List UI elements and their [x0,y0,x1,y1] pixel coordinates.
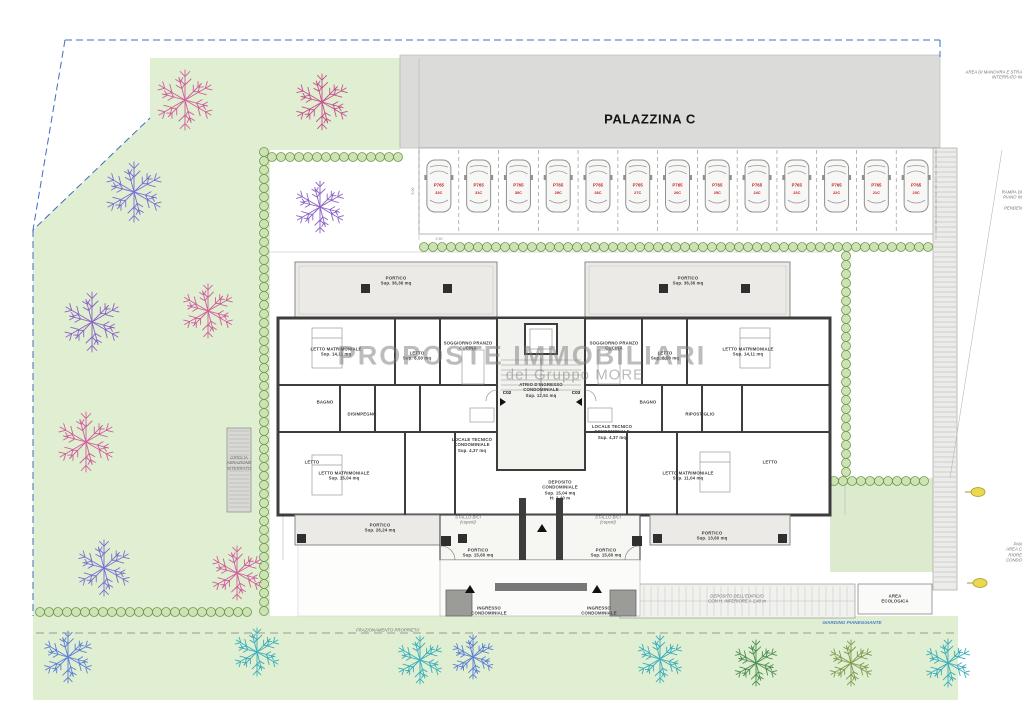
bush-icon [537,243,546,252]
bush-icon [260,481,269,490]
bush-icon [260,517,269,526]
bush-icon [260,265,269,274]
car-icon [703,160,732,212]
bush-icon [304,153,313,162]
bush-icon [920,477,929,486]
bush-icon [492,243,501,252]
bush-icon [54,608,63,617]
bush-icon [834,243,843,252]
bush-icon [708,243,717,252]
bush-icon [924,243,933,252]
bush-icon [842,279,851,288]
bush-icon [260,229,269,238]
bush-icon [180,608,189,617]
bush-icon [842,405,851,414]
bush-icon [260,562,269,571]
bush-icon [866,477,875,486]
bush-icon [573,243,582,252]
bush-icon [771,243,780,252]
planter [610,590,636,616]
bush-icon [843,243,852,252]
entry-steps [495,583,587,591]
bush-icon [842,306,851,315]
bush-icon [260,499,269,508]
bush-icon [842,378,851,387]
car-icon [743,160,772,212]
portico-top-left [295,262,497,318]
bush-icon [394,153,403,162]
bush-icon [260,400,269,409]
bush-icon [726,243,735,252]
bush-icon [260,355,269,364]
plan-base-svg [0,0,1024,724]
ventilation-grille [227,428,251,512]
bush-icon [260,256,269,265]
bush-icon [780,243,789,252]
bush-icon [842,441,851,450]
maneuver-area [400,55,940,148]
bush-icon [260,319,269,328]
bush-icon [672,243,681,252]
bush-icon [260,364,269,373]
ramp-strip [933,148,957,590]
bush-icon [216,608,225,617]
bush-icon [842,252,851,261]
bush-icon [762,243,771,252]
ecologic-area-box [858,584,932,614]
bush-icon [260,346,269,355]
bush-icon [260,310,269,319]
bush-icon [842,351,851,360]
bush-icon [528,243,537,252]
bush-icon [893,477,902,486]
bush-icon [207,608,216,617]
bush-icon [645,243,654,252]
bush-icon [63,608,72,617]
bush-icon [260,463,269,472]
bush-icon [260,301,269,310]
car-icon [782,160,811,212]
bush-icon [135,608,144,617]
bush-icon [842,432,851,441]
bush-icon [260,454,269,463]
bush-icon [582,243,591,252]
bush-icon [358,153,367,162]
bush-icon [260,274,269,283]
bush-icon [260,535,269,544]
bush-icon [260,508,269,517]
bush-icon [349,153,358,162]
bush-icon [260,598,269,607]
bush-icon [842,315,851,324]
bush-icon [45,608,54,617]
planter [446,590,472,616]
bush-icon [225,608,234,617]
bush-icon [260,409,269,418]
bush-icon [189,608,198,617]
car-icon [544,160,573,212]
car-icon [663,160,692,212]
bush-icon [153,608,162,617]
bush-icon [842,261,851,270]
bush-icon [260,427,269,436]
street-lamp-icon [967,579,987,588]
bush-icon [260,373,269,382]
bush-icon [268,153,277,162]
car-icon [902,160,931,212]
bush-icon [842,414,851,423]
bush-icon [260,526,269,535]
car-icon [464,160,493,212]
car-icon [583,160,612,212]
bush-icon [681,243,690,252]
bush-icon [260,184,269,193]
bush-icon [260,580,269,589]
bush-icon [842,288,851,297]
site-plan-drawing: PALAZZINA C P76532CP76531CP76530CP76529C… [0,0,1024,724]
bush-icon [842,297,851,306]
bush-icon [753,243,762,252]
portico-top-right [585,262,790,318]
bush-icon [260,589,269,598]
bush-icon [429,243,438,252]
bush-icon [260,202,269,211]
bush-icon [911,477,920,486]
bush-icon [438,243,447,252]
bush-icon [735,243,744,252]
bush-icon [510,243,519,252]
bush-icon [331,153,340,162]
bush-icon [277,153,286,162]
bush-icon [260,436,269,445]
bush-icon [260,418,269,427]
portico-bottom-right [650,515,790,545]
bush-icon [260,472,269,481]
bush-icon [915,243,924,252]
bush-icon [260,607,269,616]
bush-icon [798,243,807,252]
bush-icon [857,477,866,486]
bush-icon [322,153,331,162]
bush-icon [81,608,90,617]
bush-icon [108,608,117,617]
bush-icon [483,243,492,252]
bush-icon [546,243,555,252]
bush-icon [906,243,915,252]
bush-icon [447,243,456,252]
bush-icon [564,243,573,252]
bush-icon [519,243,528,252]
tree-icon [295,181,345,233]
car-icon [623,160,652,212]
bush-icon [842,468,851,477]
bush-icon [144,608,153,617]
bush-icon [816,243,825,252]
bush-icon [842,423,851,432]
bush-icon [825,243,834,252]
bush-icon [842,459,851,468]
bush-icon [313,153,322,162]
bush-icon [600,243,609,252]
bush-icon [654,243,663,252]
bush-icon [897,243,906,252]
bush-icon [260,391,269,400]
bush-icon [842,342,851,351]
bush-icon [260,544,269,553]
car-icon [822,160,851,212]
bush-icon [870,243,879,252]
bush-icon [260,238,269,247]
bush-icon [807,243,816,252]
bush-icon [260,220,269,229]
bush-icon [260,292,269,301]
bush-icon [555,243,564,252]
bush-icon [842,270,851,279]
street-lamp-icon [965,488,985,497]
bush-icon [385,153,394,162]
bush-icon [72,608,81,617]
bush-icon [260,166,269,175]
bush-icon [884,477,893,486]
bush-icon [690,243,699,252]
bush-icon [618,243,627,252]
bush-icon [376,153,385,162]
bush-icon [260,490,269,499]
bush-icon [888,243,897,252]
bush-icon [243,608,252,617]
bush-icon [260,382,269,391]
bush-icon [162,608,171,617]
bush-icon [848,477,857,486]
bush-icon [99,608,108,617]
bush-icon [842,396,851,405]
bush-icon [456,243,465,252]
bush-icon [842,450,851,459]
bush-icon [789,243,798,252]
bush-icon [842,387,851,396]
bush-icon [260,328,269,337]
bush-icon [260,193,269,202]
bush-icon [36,608,45,617]
bush-icon [340,153,349,162]
bush-icon [126,608,135,617]
bush-icon [367,153,376,162]
bush-icon [902,477,911,486]
bush-icon [295,153,304,162]
bush-icon [260,445,269,454]
bush-icon [627,243,636,252]
bush-icon [591,243,600,252]
bush-icon [117,608,126,617]
bush-icon [699,243,708,252]
bush-icon [198,608,207,617]
bush-icon [501,243,510,252]
bush-icon [879,243,888,252]
bush-icon [465,243,474,252]
bush-icon [234,608,243,617]
bush-icon [842,369,851,378]
bike-shelter [440,515,640,560]
bush-icon [842,360,851,369]
bush-icon [260,283,269,292]
bush-icon [260,148,269,157]
bush-icon [875,477,884,486]
bush-icon [636,243,645,252]
bush-icon [90,608,99,617]
bush-icon [260,175,269,184]
bush-icon [861,243,870,252]
bush-icon [839,477,848,486]
car-icon [424,160,453,212]
bush-icon [663,243,672,252]
bush-icon [609,243,618,252]
bush-icon [171,608,180,617]
car-icon [504,160,533,212]
bush-icon [260,211,269,220]
bush-icon [420,243,429,252]
car-icon [862,160,891,212]
bush-icon [717,243,726,252]
bush-icon [842,333,851,342]
bush-icon [260,247,269,256]
bush-icon [852,243,861,252]
bush-icon [286,153,295,162]
bush-icon [744,243,753,252]
plan-title: PALAZZINA C [604,112,696,127]
bush-icon [474,243,483,252]
bush-icon [260,571,269,580]
bush-icon [842,324,851,333]
bush-icon [260,157,269,166]
bush-icon [260,337,269,346]
bush-icon [260,553,269,562]
